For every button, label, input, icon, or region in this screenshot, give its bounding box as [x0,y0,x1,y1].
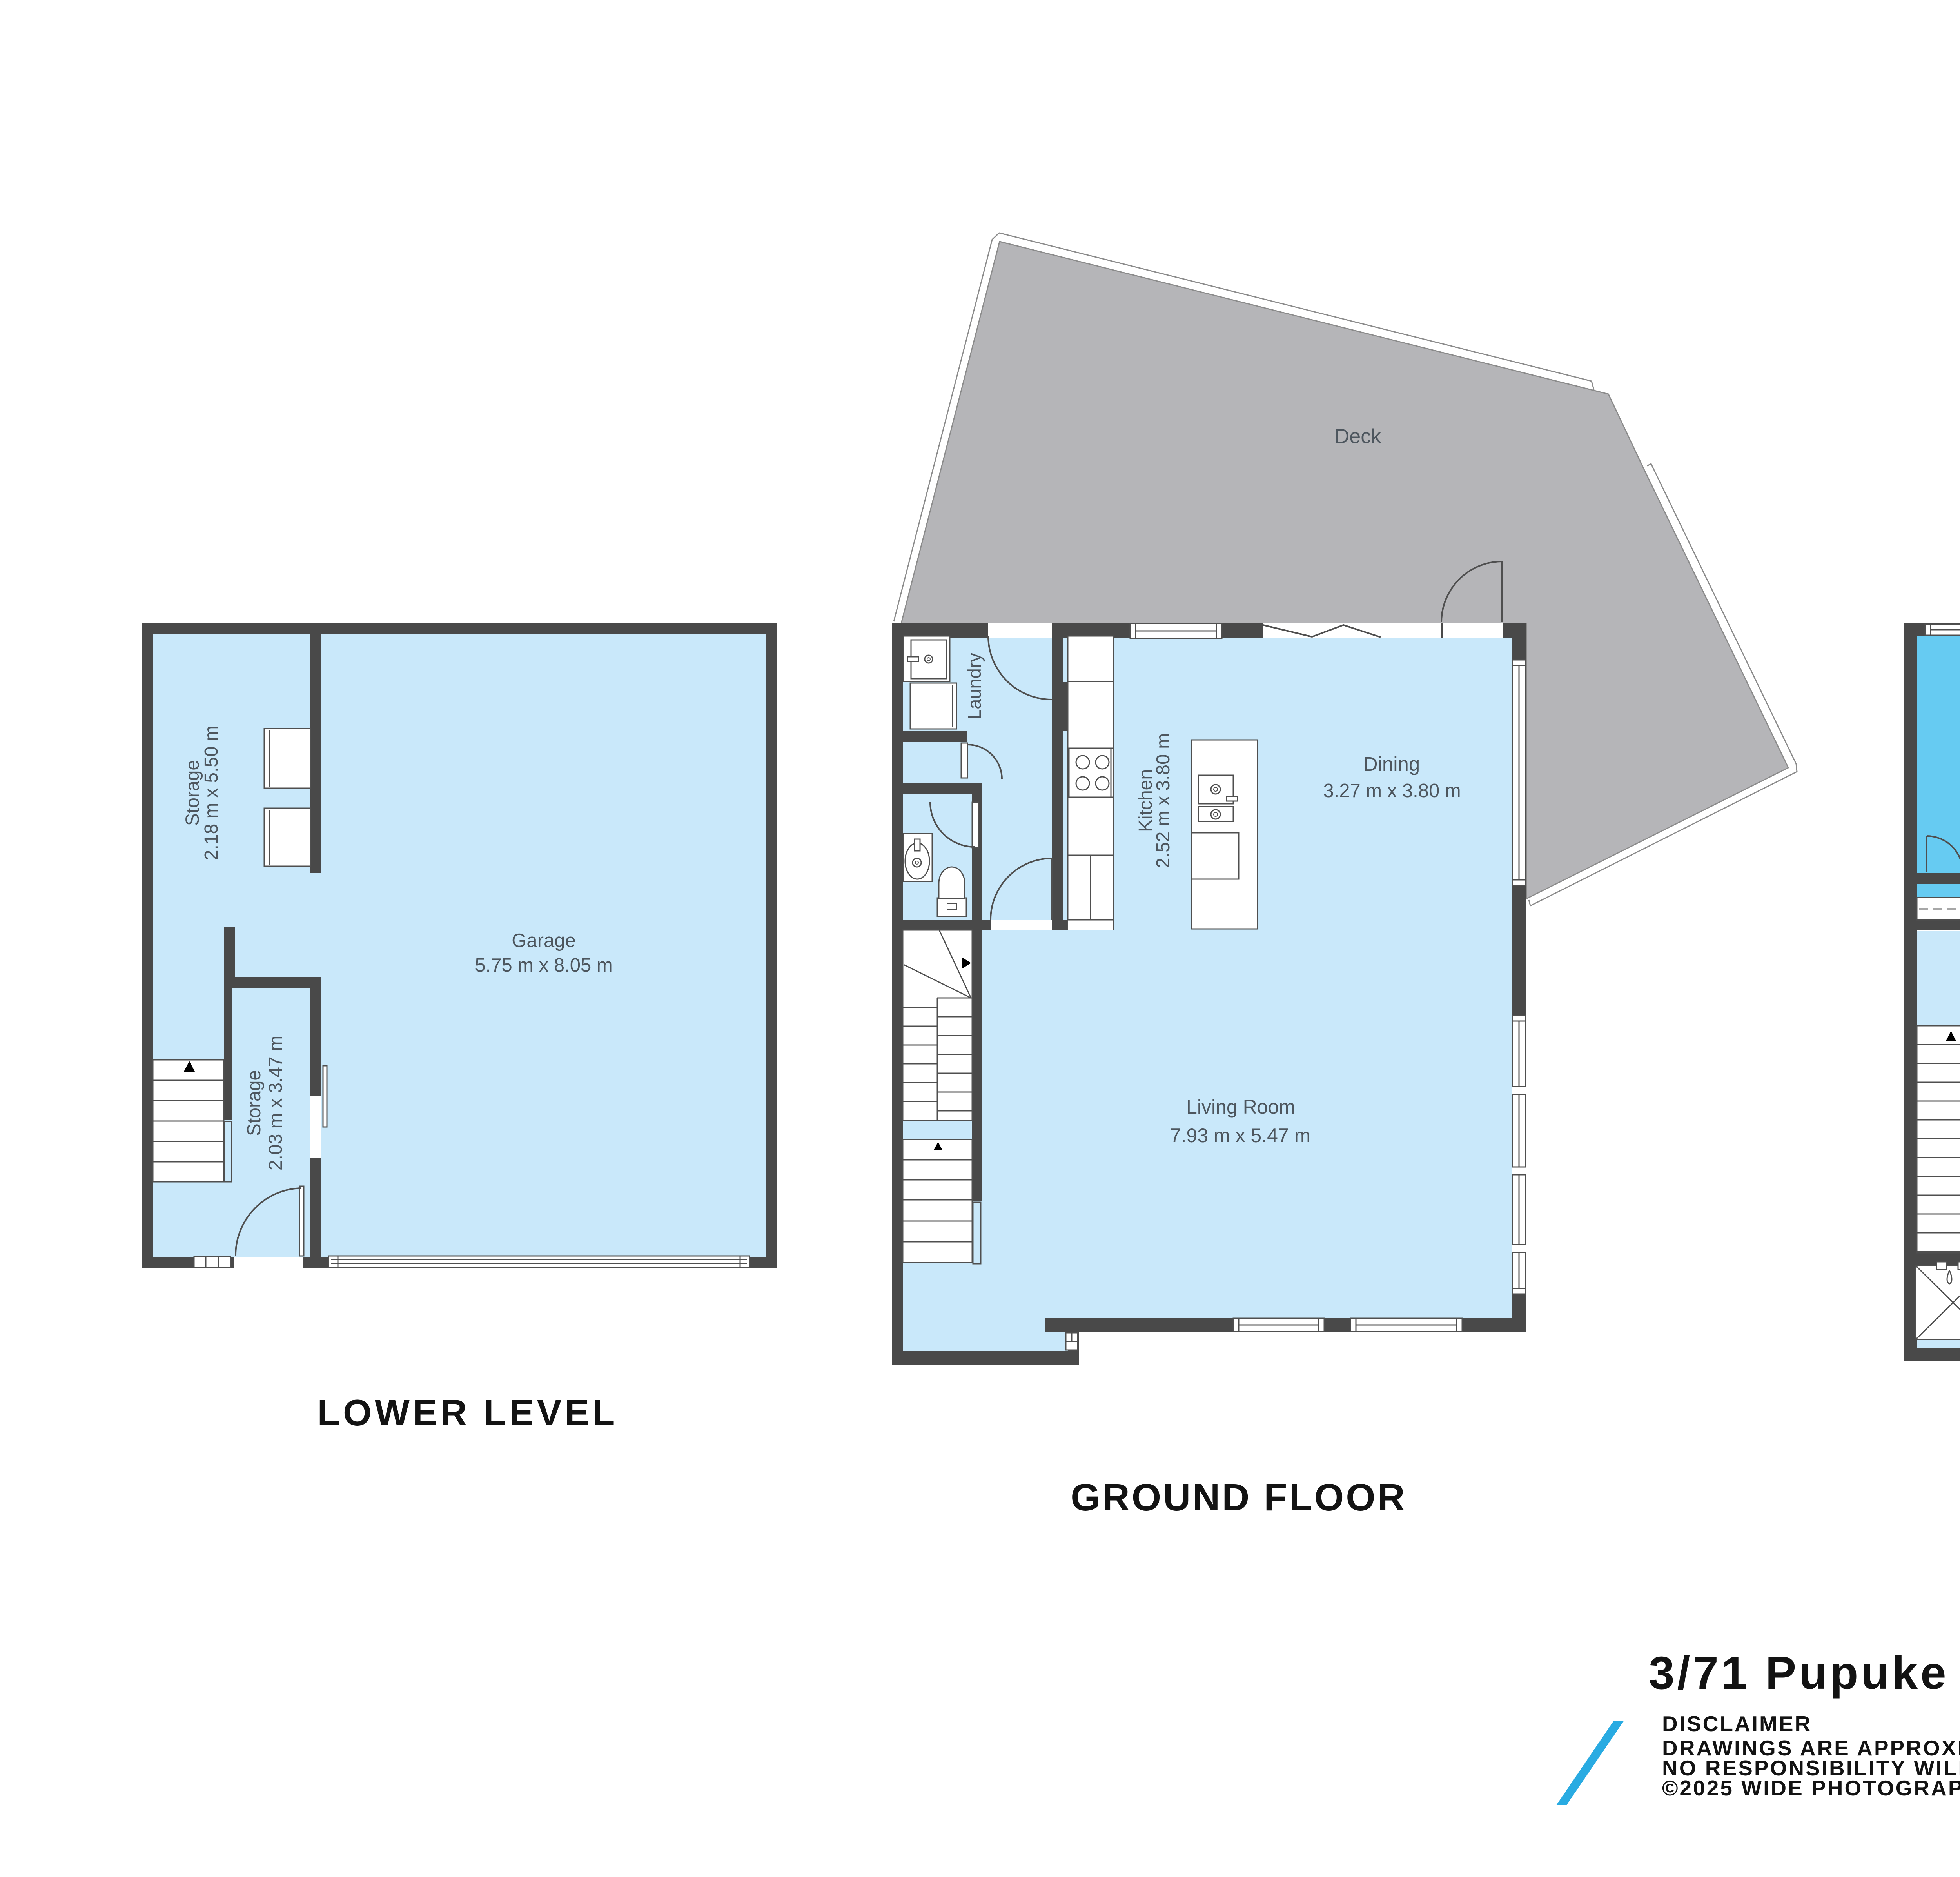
svg-text:7.93 m x 5.47 m: 7.93 m x 5.47 m [1170,1125,1311,1147]
svg-text:3/71 Pupuke Road, Northcte: 3/71 Pupuke Road, Northcte [1649,1647,1960,1699]
svg-text:Deck: Deck [1335,425,1381,448]
svg-text:Storage: Storage [182,760,203,826]
svg-text:2.52 m x 3.80 m: 2.52 m x 3.80 m [1153,733,1174,868]
svg-text:3.27 m x 3.80 m: 3.27 m x 3.80 m [1323,780,1461,801]
svg-text:2.03 m x 3.47 m: 2.03 m x 3.47 m [265,1036,286,1170]
svg-text:Laundry: Laundry [964,653,985,720]
svg-text:Storage: Storage [244,1070,265,1136]
svg-text:Dining: Dining [1363,753,1420,775]
svg-text:LOWER LEVEL: LOWER LEVEL [318,1392,618,1433]
svg-text:2.18 m x 5.50 m: 2.18 m x 5.50 m [201,725,222,860]
svg-text:GROUND FLOOR: GROUND FLOOR [1071,1476,1407,1519]
svg-text:Garage: Garage [512,930,575,951]
svg-text:5.75 m x 8.05 m: 5.75 m x 8.05 m [475,955,612,976]
svg-text:Living Room: Living Room [1186,1096,1295,1118]
svg-text:DISCLAIMER: DISCLAIMER [1662,1712,1812,1736]
svg-text:©2025 WIDE PHOTOGRAPHY: ©2025 WIDE PHOTOGRAPHY [1662,1776,1960,1800]
